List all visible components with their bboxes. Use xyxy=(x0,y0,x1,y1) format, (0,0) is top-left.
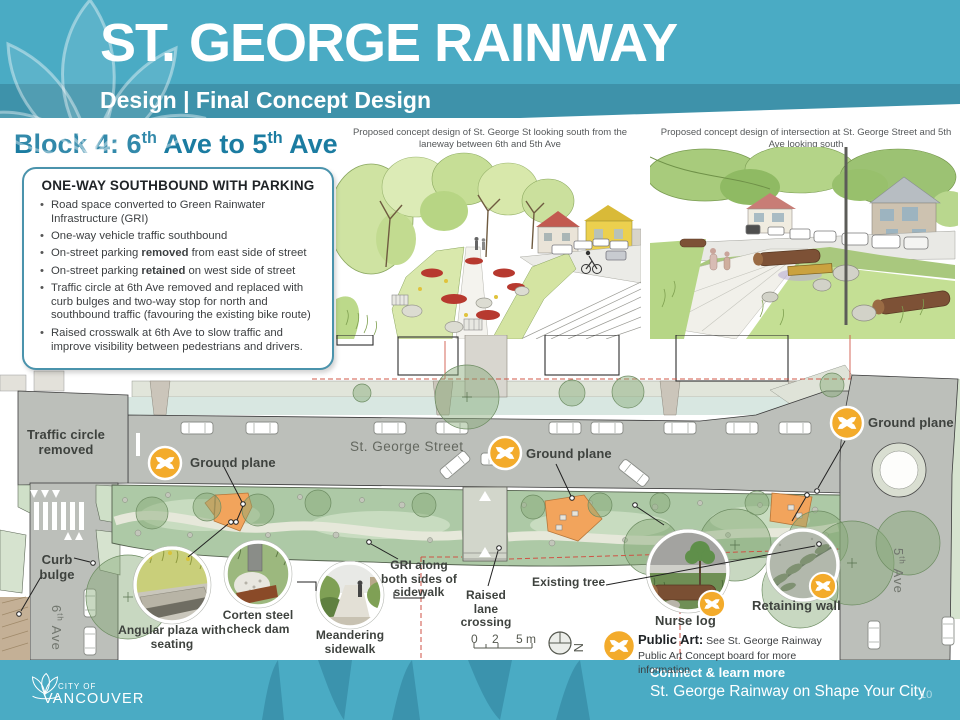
label-fifth-ave: 5th Ave xyxy=(891,548,906,594)
public-art-legend: Public Art: See St. George Rainway Publi… xyxy=(638,631,830,677)
bullet-item: Road space converted to Green Rainwater … xyxy=(40,199,320,227)
scale-two: 2 xyxy=(492,632,499,646)
label-traffic-circle-removed: Traffic circle removed xyxy=(16,428,116,457)
page-subtitle: Design | Final Concept Design xyxy=(100,87,431,114)
label-meandering: Meandering sidewalk xyxy=(294,629,406,656)
label-ground-plane-2: Ground plane xyxy=(526,447,612,462)
left-concept-sketch xyxy=(336,149,641,339)
scale-five: 5 m xyxy=(516,632,536,646)
label-st-george-street: St. George Street xyxy=(350,439,464,454)
label-gri: GRI along both sides of sidewalk xyxy=(376,559,462,600)
scale-zero: 0 xyxy=(471,632,478,646)
public-art-icon xyxy=(149,447,181,479)
logo-vancouver: VANCOUVER xyxy=(43,691,145,707)
label-ground-plane-3: Ground plane xyxy=(868,416,954,431)
info-box-title: ONE-WAY SOUTHBOUND WITH PARKING xyxy=(34,178,322,193)
right-concept-sketch xyxy=(650,147,958,339)
left-sketch-caption: Proposed concept design of St. George St… xyxy=(342,127,638,152)
plan-buildings xyxy=(337,335,788,381)
label-nurse-log: Nurse log xyxy=(655,614,716,629)
plan-property-lines xyxy=(312,335,874,379)
bullet-item: One-way vehicle traffic southbound xyxy=(40,230,320,244)
sketch-grass-corner xyxy=(336,296,359,339)
block-heading: Block 4: 6th Ave to 5th Ave xyxy=(14,129,338,160)
bullet-item: On-street parking retained on west side … xyxy=(40,265,320,279)
label-curb-bulge: Curb bulge xyxy=(28,553,86,582)
public-art-icon xyxy=(831,407,863,439)
logo-city-of: CITY OF xyxy=(58,682,96,691)
label-ground-plane-1: Ground plane xyxy=(190,456,276,471)
label-existing-tree: Existing tree xyxy=(532,576,605,590)
slide: ST. GEORGE RAINWAY Design | Final Concep… xyxy=(0,0,960,720)
public-art-icon xyxy=(489,437,521,469)
info-box: ONE-WAY SOUTHBOUND WITH PARKING Road spa… xyxy=(22,167,334,370)
info-bullet-list: Road space converted to Green Rainwater … xyxy=(34,199,322,354)
public-art-icon xyxy=(603,630,635,660)
label-retaining-wall: Retaining wall xyxy=(752,599,841,614)
traffic-circle xyxy=(872,443,926,497)
public-art-icon xyxy=(810,573,836,599)
label-raised-lane: Raised lane crossing xyxy=(454,589,518,630)
bullet-item: Traffic circle at 6th Ave removed and re… xyxy=(40,282,320,323)
site-plan: N Traffic circle removed St. George Stre… xyxy=(0,335,960,660)
page-number: 10 xyxy=(920,689,932,701)
page-title: ST. GEORGE RAINWAY xyxy=(100,12,960,74)
photo-angular-plaza xyxy=(133,546,211,624)
north-arrow-icon: N xyxy=(549,632,586,654)
bullet-item: On-street parking removed from east side… xyxy=(40,247,320,261)
north-letter: N xyxy=(571,643,586,652)
label-sixth-ave: 6th Ave xyxy=(49,605,64,651)
bullet-item: Raised crosswalk at 6th Ave to slow traf… xyxy=(40,327,320,355)
photo-corten-dam xyxy=(224,540,292,608)
footer-shape-your-city: St. George Rainway on Shape Your City xyxy=(650,683,926,701)
